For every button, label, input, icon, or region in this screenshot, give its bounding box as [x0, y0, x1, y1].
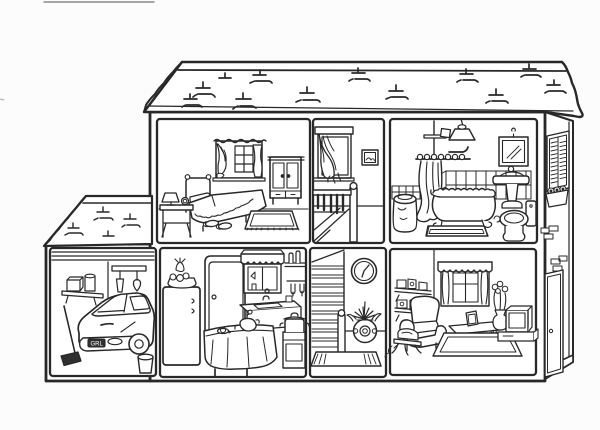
svg-text:GRL: GRL: [91, 342, 104, 348]
